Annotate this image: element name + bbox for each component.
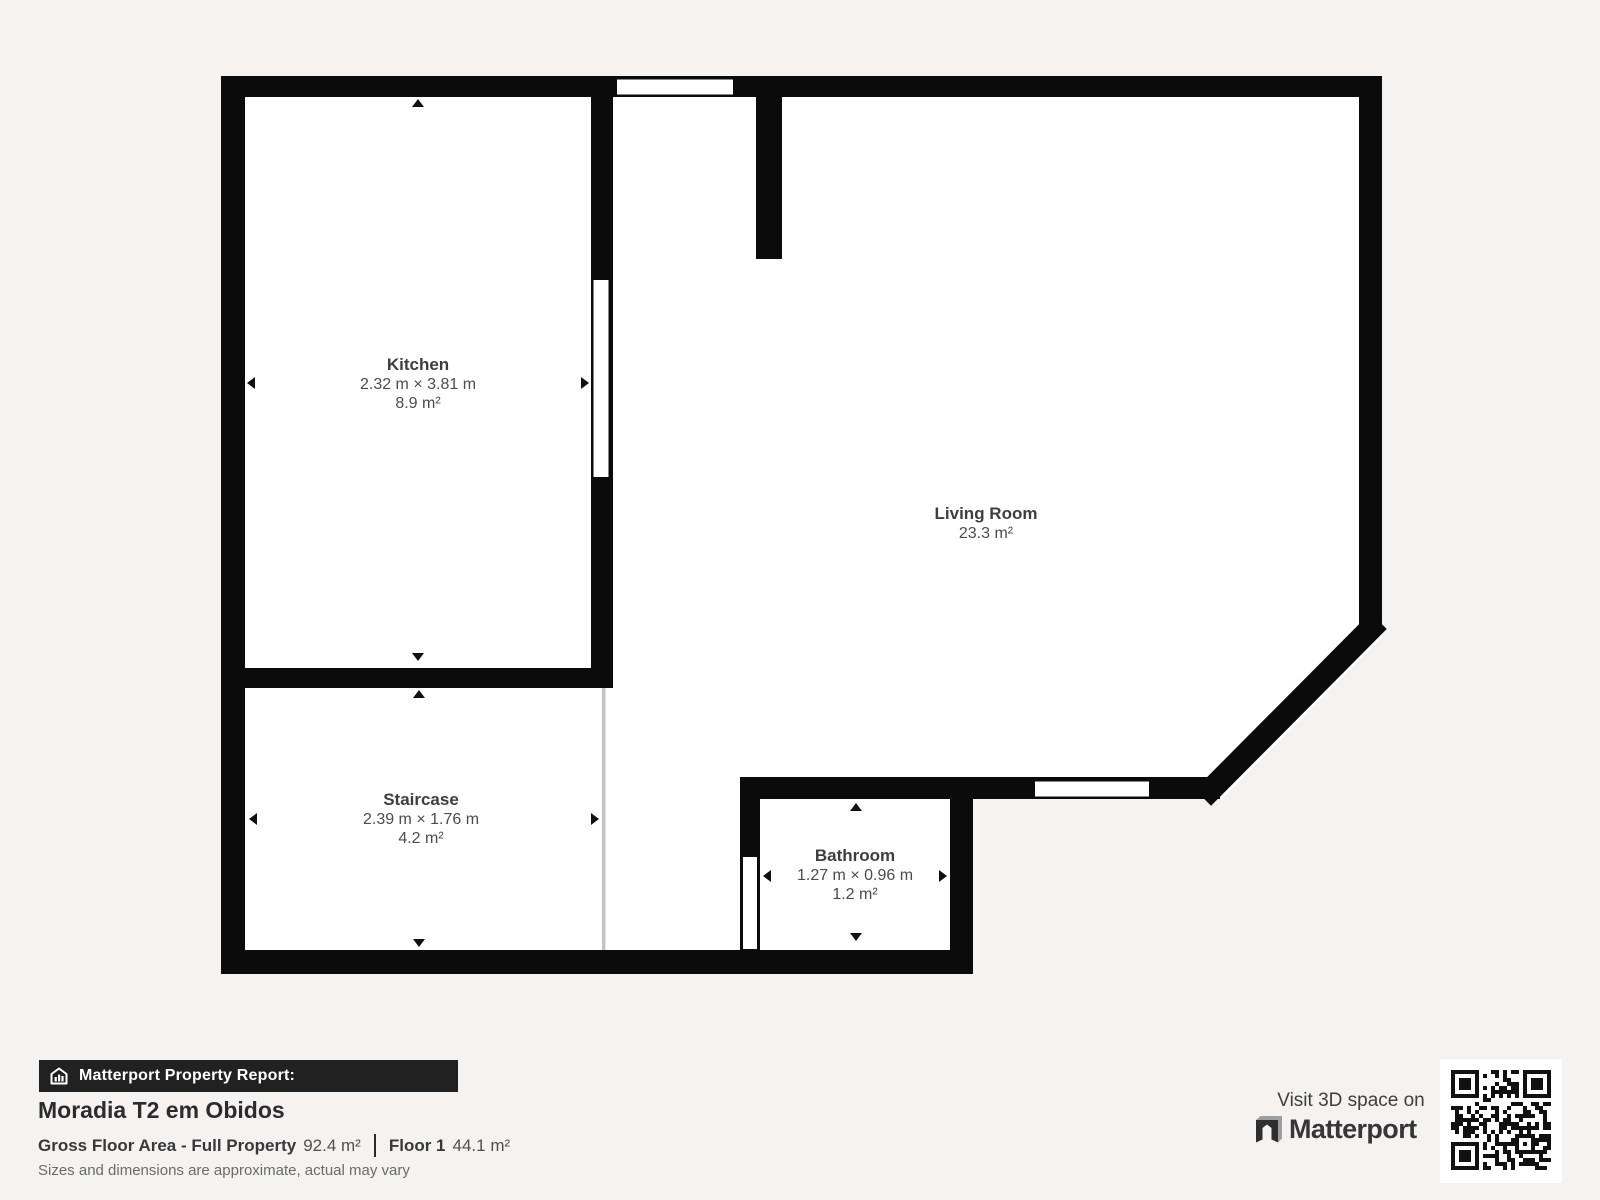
wall-entry-stub	[756, 97, 782, 259]
measure-arrow-left-icon	[763, 870, 771, 882]
measure-arrow-right-icon	[939, 870, 947, 882]
staircase-area: 4.2 m²	[363, 829, 479, 848]
floor-value: 44.1 m²	[453, 1136, 511, 1156]
qr-pattern	[1451, 1070, 1551, 1170]
wall-kitchen-staircase	[245, 668, 613, 688]
kitchen-area: 8.9 m²	[360, 394, 476, 413]
gross-floor-area-value: 92.4 m²	[303, 1136, 361, 1156]
floor-label: Floor 1	[389, 1136, 446, 1156]
wall-top	[221, 76, 1382, 97]
info-divider	[374, 1134, 376, 1157]
room-label-staircase: Staircase 2.39 m × 1.76 m 4.2 m²	[363, 789, 479, 848]
bathroom-dimensions: 1.27 m × 0.96 m	[797, 866, 913, 885]
room-label-bathroom: Bathroom 1.27 m × 0.96 m 1.2 m²	[797, 845, 913, 904]
floor-area-info: Gross Floor Area - Full Property 92.4 m²…	[38, 1134, 510, 1157]
kitchen-dimensions: 2.32 m × 3.81 m	[360, 375, 476, 394]
wall-bathroom-right	[950, 777, 973, 974]
matterport-wordmark: Matterport	[1289, 1114, 1417, 1145]
measure-arrow-up-icon	[412, 99, 424, 107]
room-label-living-room: Living Room 23.3 m²	[935, 503, 1038, 543]
measure-arrow-up-icon	[850, 803, 862, 811]
livingroom-window	[1034, 781, 1150, 798]
measure-arrow-down-icon	[413, 939, 425, 947]
report-banner: Matterport Property Report:	[39, 1060, 458, 1092]
measure-arrow-right-icon	[581, 377, 589, 389]
wall-right	[1359, 76, 1382, 632]
wall-bottom	[221, 950, 973, 974]
measure-arrow-up-icon	[413, 690, 425, 698]
kitchen-window	[593, 279, 610, 478]
living-room-area: 23.3 m²	[935, 524, 1038, 543]
measure-arrow-down-icon	[850, 933, 862, 941]
entry-door-opening	[616, 79, 734, 96]
bathroom-area: 1.2 m²	[797, 885, 913, 904]
wall-left	[221, 76, 245, 974]
bathroom-name: Bathroom	[797, 845, 913, 866]
matterport-logo-icon	[1252, 1113, 1282, 1145]
disclaimer-text: Sizes and dimensions are approximate, ac…	[38, 1162, 410, 1179]
staircase-edge-line	[602, 688, 606, 950]
living-room-name: Living Room	[935, 503, 1038, 524]
report-banner-label: Matterport Property Report:	[79, 1067, 295, 1085]
gross-floor-area-label: Gross Floor Area - Full Property	[38, 1136, 296, 1156]
property-report-icon	[49, 1066, 69, 1086]
floor-plan	[0, 0, 1600, 1200]
measure-arrow-right-icon	[591, 813, 599, 825]
kitchen-name: Kitchen	[360, 354, 476, 375]
staircase-dimensions: 2.39 m × 1.76 m	[363, 810, 479, 829]
matterport-logo: Matterport	[1252, 1113, 1417, 1145]
room-label-kitchen: Kitchen 2.32 m × 3.81 m 8.9 m²	[360, 354, 476, 413]
bathroom-door-opening	[742, 856, 758, 950]
measure-arrow-left-icon	[247, 377, 255, 389]
measure-arrow-down-icon	[412, 653, 424, 661]
property-name: Moradia T2 em Obidos	[38, 1097, 285, 1124]
qr-code	[1451, 1070, 1551, 1170]
visit-3d-text: Visit 3D space on	[1266, 1090, 1436, 1112]
staircase-name: Staircase	[363, 789, 479, 810]
measure-arrow-left-icon	[249, 813, 257, 825]
